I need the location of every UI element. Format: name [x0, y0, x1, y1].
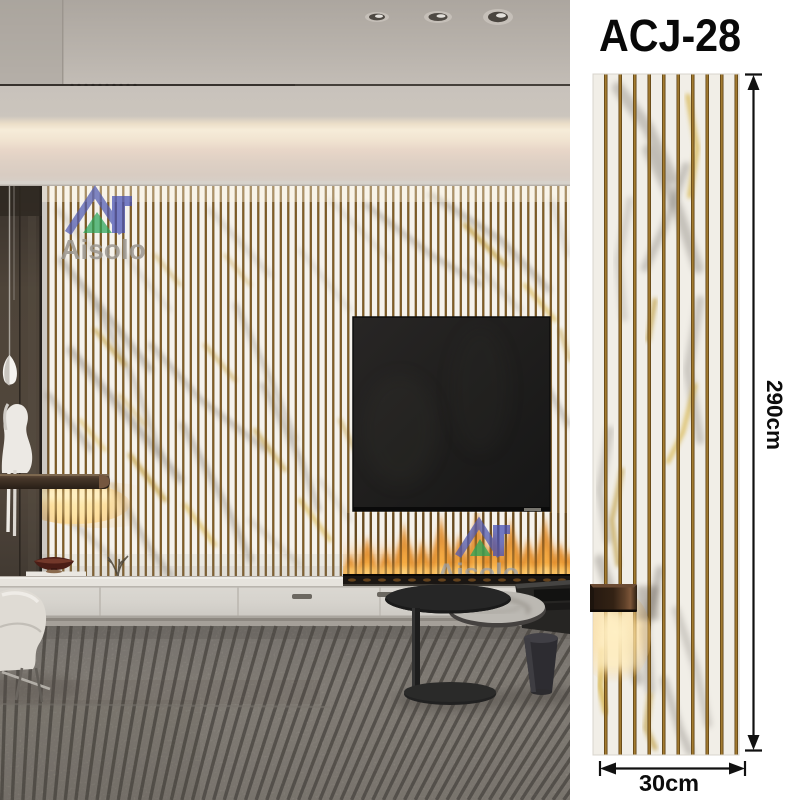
svg-text:30cm: 30cm [639, 770, 699, 796]
svg-text:Aisolo: Aisolo [60, 234, 146, 265]
svg-text:290cm: 290cm [762, 380, 787, 450]
svg-text:ACJ-28: ACJ-28 [599, 10, 741, 61]
